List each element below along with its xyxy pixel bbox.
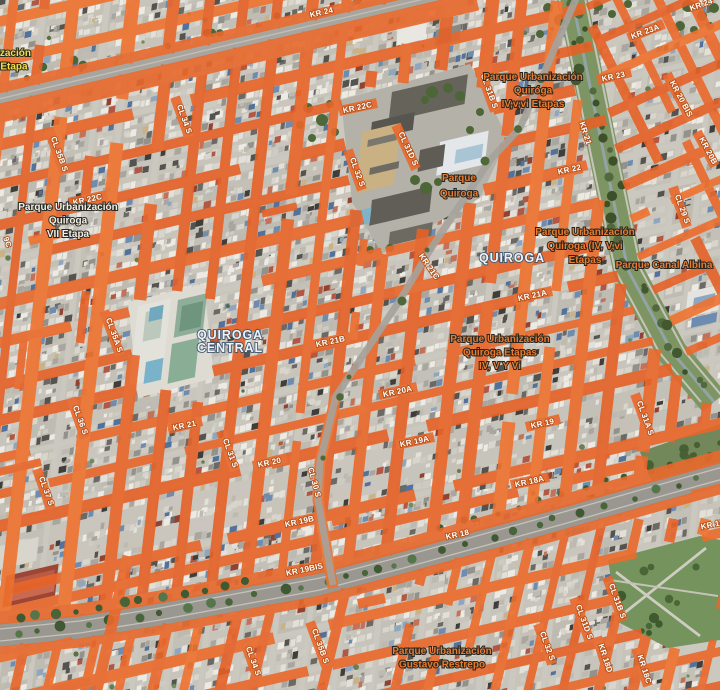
svg-text:Parque Urbanización: Parque Urbanización <box>483 72 582 83</box>
svg-text:Parque: Parque <box>442 173 476 184</box>
svg-text:Quiroga: Quiroga <box>440 189 479 200</box>
svg-text:Etapa: Etapa <box>0 62 28 73</box>
svg-text:Quiroga (IV, V,vi: Quiroga (IV, V,vi <box>547 241 623 252</box>
svg-text:Quiroga: Quiroga <box>49 216 88 227</box>
svg-text:Quiróga: Quiróga <box>514 86 553 97</box>
svg-text:VII Etapa: VII Etapa <box>47 229 90 240</box>
svg-text:QUIROGA: QUIROGA <box>197 328 263 342</box>
svg-text:IV, V Y Vi: IV, V Y Vi <box>479 361 521 372</box>
svg-text:Parque Urbanización: Parque Urbanización <box>18 202 117 213</box>
svg-text:IV,v,vi Etapas: IV,v,vi Etapas <box>502 99 565 110</box>
svg-text:ización: ización <box>0 48 31 59</box>
svg-text:QUIROGA: QUIROGA <box>479 251 545 265</box>
svg-text:Parque Canal Albina: Parque Canal Albina <box>616 260 713 271</box>
svg-text:Quiroga Etapas: Quiroga Etapas <box>463 348 537 359</box>
svg-text:Parque Urbanización: Parque Urbanización <box>535 227 634 238</box>
svg-text:Etapas: Etapas <box>569 255 602 266</box>
svg-text:Parque Urbanización: Parque Urbanización <box>450 334 549 345</box>
svg-text:Parque Urbanización: Parque Urbanización <box>392 646 491 657</box>
svg-text:Gustavo Restrepo: Gustavo Restrepo <box>399 660 485 671</box>
svg-text:CENTRAL: CENTRAL <box>197 341 263 355</box>
